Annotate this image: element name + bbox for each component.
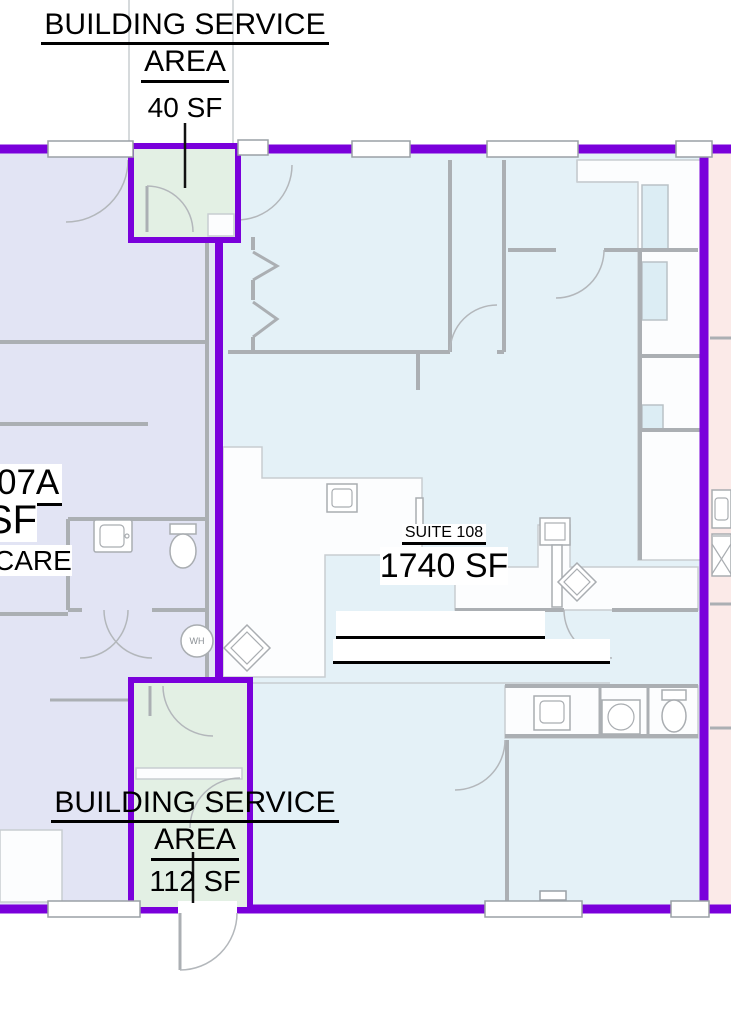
left-suite-name-partial: CARE: [0, 545, 72, 577]
window-sill: [540, 891, 566, 900]
shelf-icon: [642, 262, 667, 320]
label-line: BUILDING SERVICE: [51, 787, 338, 823]
area-value: 1740 SF: [380, 547, 509, 585]
toilet-tank: [170, 524, 196, 534]
door-opening: [178, 901, 237, 917]
area-value: 40 SF: [15, 92, 355, 124]
label-line: AREA: [141, 46, 229, 82]
water-heater-label: WH: [190, 636, 205, 646]
toilet-icon: [662, 700, 686, 732]
shelf-icon: [642, 405, 663, 431]
window-opening: [676, 141, 712, 157]
window-opening: [485, 901, 582, 917]
suite-108-label: SUITE 108 1740 SF: [330, 524, 558, 586]
right-suite-room: [708, 153, 731, 905]
toilet-tank: [662, 690, 686, 700]
exterior-door: [178, 901, 237, 970]
window-opening: [48, 141, 133, 157]
window-opening: [487, 141, 578, 157]
window-opening: [48, 901, 140, 917]
redacted-line: [333, 639, 610, 664]
floor-plan-canvas: WH BUILDING SERVICE AREA 40 SF SUITE 108…: [0, 0, 731, 1024]
wall-notch: [208, 214, 234, 236]
service-area-top-label: BUILDING SERVICE AREA 40 SF: [15, 8, 355, 124]
redacted-line: [336, 611, 545, 639]
left-suite-area-partial: SF: [0, 498, 37, 543]
service-area-bottom-label: BUILDING SERVICE AREA 112 SF: [25, 786, 365, 899]
suite-name: SUITE 108: [402, 524, 486, 545]
shelf-icon: [642, 185, 668, 251]
window-opening: [238, 140, 268, 155]
window-opening: [671, 901, 709, 917]
label-line: BUILDING SERVICE: [41, 9, 328, 45]
label-line: AREA: [151, 824, 239, 860]
shelf-icon: [136, 768, 242, 779]
door-arc: [180, 913, 237, 970]
toilet-icon: [170, 534, 196, 568]
area-value: 112 SF: [25, 866, 365, 899]
window-opening: [352, 141, 410, 157]
